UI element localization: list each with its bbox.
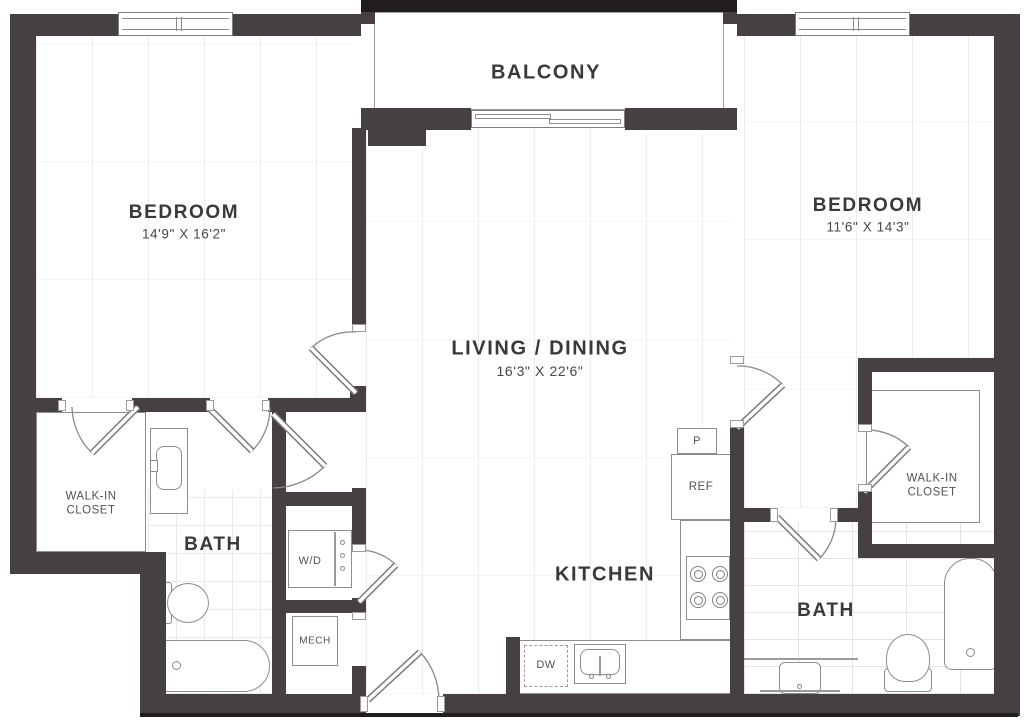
bedroom-right-label: BEDROOM [813,195,923,217]
living-dining-dims: 16'3" X 22'6" [497,363,584,379]
door-jamb [360,696,368,712]
door-arc [420,652,439,700]
bedroom-left-label: BEDROOM [129,202,239,224]
window-sash [122,18,229,30]
door-arc [72,407,92,453]
pantry-label: P [693,435,701,447]
door-jamb [262,400,270,411]
door-arc [252,407,270,451]
door-jamb [352,324,366,332]
door-arc [819,517,836,559]
balcony-label: BALCONY [491,62,601,85]
door-jamb [126,400,134,411]
window-sash [799,18,906,30]
window [795,12,910,36]
bedroom-left-dims: 14'9" X 16'2" [142,227,226,242]
door-jamb [730,420,744,428]
door-jamb [352,544,366,552]
dishwasher-label: DW [536,659,555,671]
door-arc [737,366,783,385]
door-swings [0,0,1024,721]
closet-left-label: WALK-IN CLOSET [47,490,135,519]
sliding-glass-door [471,110,625,128]
door-arc [311,332,356,348]
slider-panel [475,114,551,119]
refrigerator-label: REF [689,481,714,493]
door-jamb [858,484,872,492]
door-arc [359,550,396,565]
mech-label: MECH [299,636,330,647]
door-arc [864,430,909,447]
closet-right-label: WALK-IN CLOSET [888,472,976,501]
laundry-label: W/D [299,555,322,567]
door-arc [273,466,325,488]
door-leaves [92,348,909,700]
door-jamb [206,400,214,411]
door-jamb [58,400,66,411]
floor-plan: BALCONY BEDROOM 14'9" X 16'2" BEDROOM 11… [0,0,1024,721]
bath-right-label: BATH [797,600,855,622]
door-jamb [437,696,445,712]
window [118,12,233,36]
bath-left-label: BATH [184,534,242,556]
door-jamb [770,508,778,522]
door-jamb [730,356,744,364]
kitchen-label: KITCHEN [555,564,655,587]
bedroom-right-dims: 11'6" X 14'3" [826,220,909,235]
slider-panel [549,119,621,124]
door-jamb [352,612,366,620]
door-jamb [830,508,838,522]
living-dining-label: LIVING / DINING [451,338,628,361]
door-jamb [858,424,872,432]
